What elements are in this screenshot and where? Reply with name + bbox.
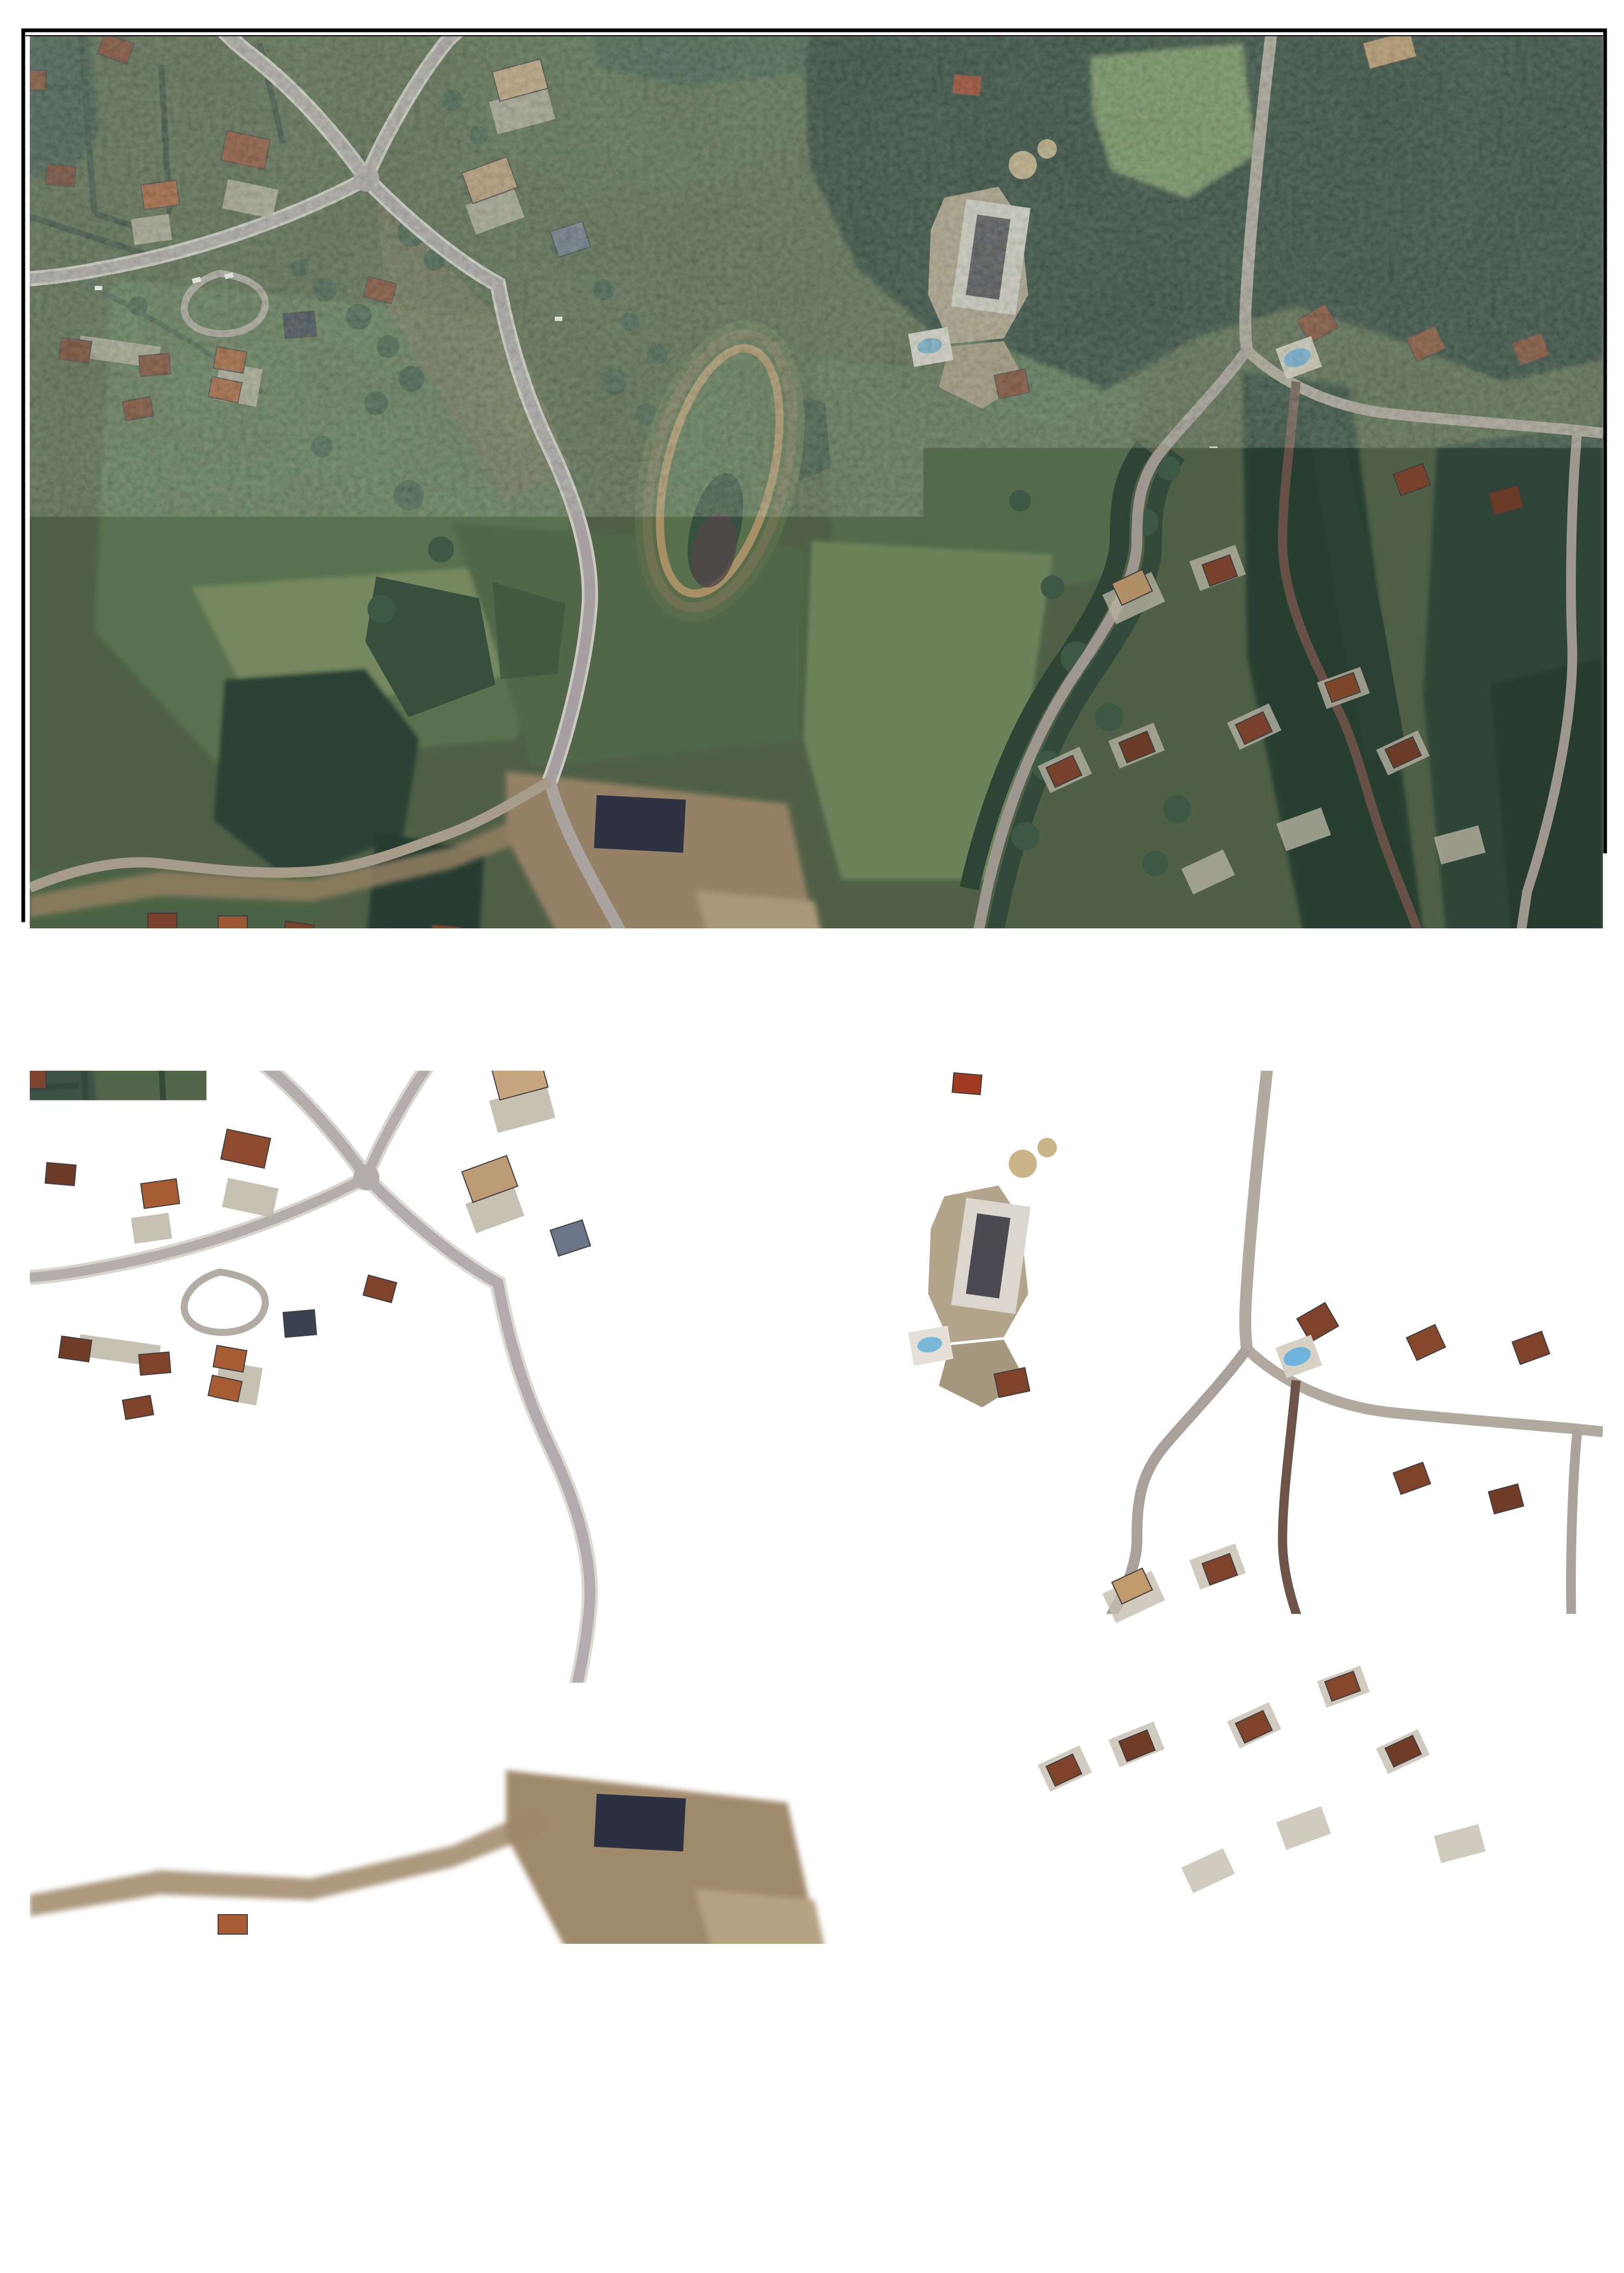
svg-text:VUE AERIENNE: VUE AERIENNE — [795, 2121, 1147, 2174]
svg-text:LOTISSEMENT COMMUNAL - SAINT D: LOTISSEMENT COMMUNAL - SAINT DESIR DE LI… — [911, 989, 1573, 1015]
svg-text:TRANSFORMATEUR: TRANSFORMATEUR — [1108, 1568, 1296, 1590]
svg-text:DECHET: DECHET — [451, 1606, 531, 1628]
svg-text:RETENTION: RETENTION — [635, 1851, 747, 1874]
svg-text:MODIFIE LE:: MODIFIE LE: — [31, 2104, 135, 2121]
svg-text:AIRE DE: AIRE DE — [452, 1562, 530, 1584]
svg-text:n°du plan: n°du plan — [1453, 2105, 1526, 2122]
svg-text:METRES: METRES — [279, 1018, 331, 1032]
svg-text:SAINT DESIR DE LISIEUX: SAINT DESIR DE LISIEUX — [525, 1943, 1198, 1988]
svg-text:AMENAGEMENT LOTISSEMENT COMMUN: AMENAGEMENT LOTISSEMENT COMMUNAL : "LE C… — [201, 1989, 1398, 2024]
svg-text:STOCKAGE: STOCKAGE — [439, 1584, 547, 1606]
svg-text:N: N — [54, 946, 64, 962]
svg-text:LE :: LE : — [579, 2203, 608, 2219]
svg-text:ECHELLE :: ECHELLE : — [579, 2176, 661, 2192]
svg-text:SCENARIO RETENU: SCENARIO RETENU — [1044, 1021, 1346, 1056]
svg-text:AIRE DE: AIRE DE — [621, 1344, 699, 1366]
svg-text:DOSSIER N:: DOSSIER N: — [579, 2228, 674, 2244]
svg-text:20: 20 — [145, 1001, 159, 1016]
svg-text:OBJET:: OBJET: — [186, 2103, 245, 2120]
svg-text:DANS LE CADRE D'UN PERMIS D'AM: DANS LE CADRE D'UN PERMIS D'AMENAGER — [464, 2060, 1215, 2087]
svg-text:N: N — [996, 1456, 1004, 1469]
svg-text:20: 20 — [299, 1001, 313, 1016]
svg-text:ECHELLE 1 : 1 000: ECHELLE 1 : 1 000 — [234, 960, 376, 978]
svg-text:RETOURNEMENT: RETOURNEMENT — [578, 1367, 742, 1389]
svg-text:BASSIN DE: BASSIN DE — [633, 1829, 737, 1851]
svg-text:PA7: PA7 — [1452, 2126, 1533, 2175]
svg-text:DOSSIER ARCHITECTURAL ET PAYSA: DOSSIER ARCHITECTURAL ET PAYSAGER — [485, 2035, 1200, 2062]
svg-text:60: 60 — [453, 1007, 468, 1021]
svg-text:40: 40 — [376, 1001, 390, 1016]
svg-text:TEL: 0231620799: TEL: 0231620799 — [857, 2221, 1047, 2242]
svg-text:TEL: 0232414532: TEL: 0232414532 — [1303, 2221, 1476, 2242]
svg-text:14/05/2009: 14/05/2009 — [637, 2197, 746, 2221]
svg-text:0: 0 — [226, 1001, 233, 1016]
